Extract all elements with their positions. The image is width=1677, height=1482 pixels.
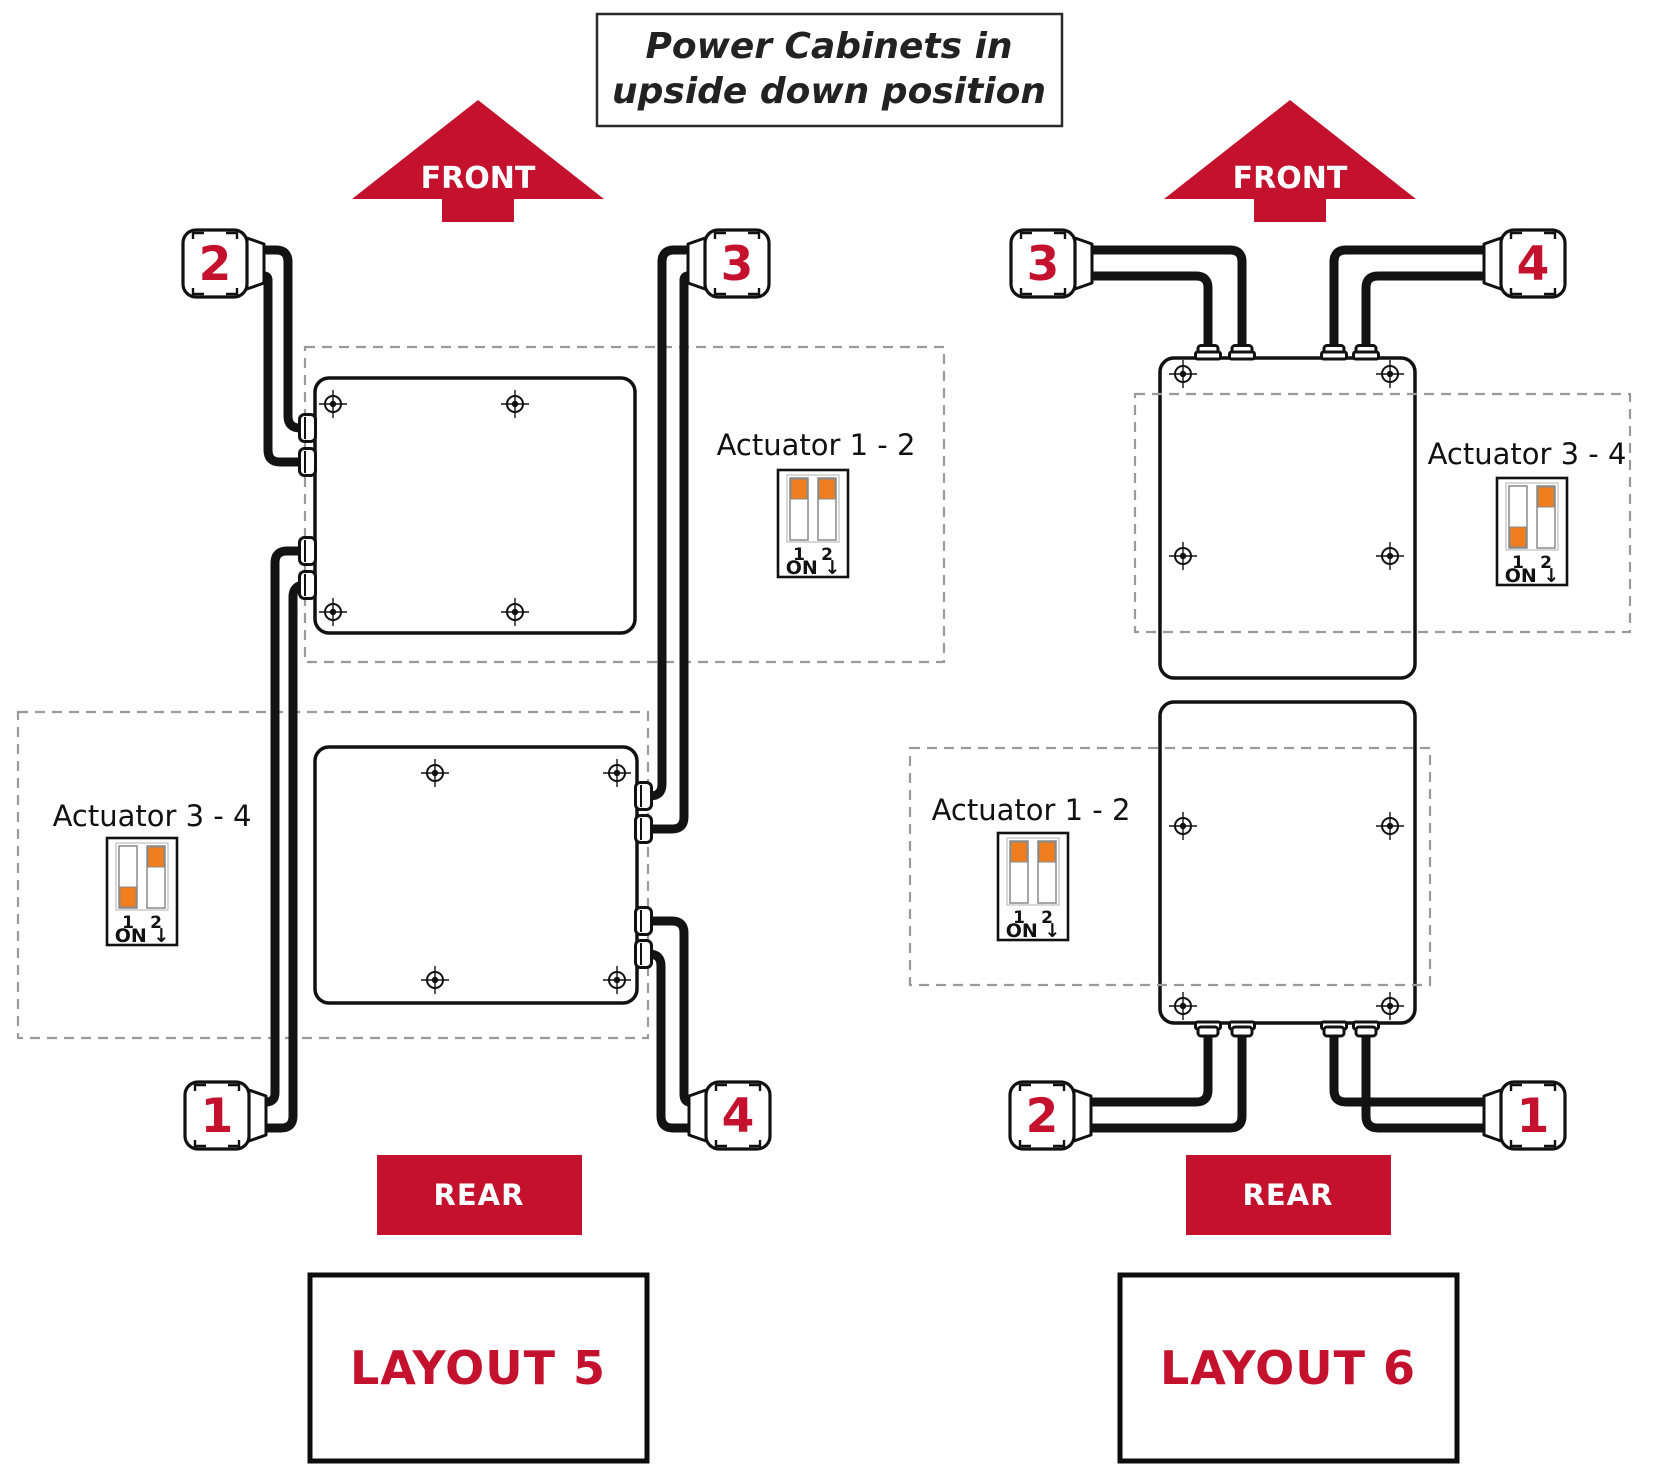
- connector-number: 2: [1026, 1089, 1059, 1144]
- layout5-name: LAYOUT 5: [350, 1341, 606, 1395]
- power-cabinet-diagram: Actuator 1 - 2 Actuator 3 - 4 Actuator 3…: [0, 0, 1677, 1477]
- dip-handle-1: [1011, 842, 1027, 862]
- dip-on-label: ON ↓: [115, 925, 170, 947]
- port: [1354, 1022, 1379, 1036]
- front-label: FRONT: [421, 161, 536, 196]
- diagram-canvas: Actuator 1 - 2 Actuator 3 - 4 Actuator 3…: [0, 0, 1677, 1477]
- rear-bar-layout6: REAR: [1186, 1155, 1391, 1235]
- layout6-actuator12-label: Actuator 1 - 2: [932, 793, 1131, 827]
- connector-2-layout5: 2: [183, 230, 264, 297]
- title-box: Power Cabinets in upside down position: [597, 14, 1062, 126]
- layout6-name-box: LAYOUT 6: [1120, 1275, 1457, 1461]
- dip-handle-1: [120, 887, 136, 907]
- layout6-name: LAYOUT 6: [1160, 1341, 1416, 1395]
- dip-handle-2: [1538, 487, 1554, 507]
- port: [300, 415, 316, 442]
- port: [636, 941, 652, 968]
- dip-handle-2: [148, 847, 164, 867]
- port: [1354, 346, 1379, 360]
- layout5-front-cabinet: [315, 378, 635, 633]
- title-line-1: Power Cabinets in: [645, 26, 1012, 67]
- connector-3-layout5: 3: [688, 230, 769, 297]
- layout6-actuator34-label: Actuator 3 - 4: [1428, 437, 1627, 471]
- port: [1230, 346, 1255, 360]
- connector-1-layout6: 1: [1484, 1082, 1565, 1149]
- port: [300, 572, 316, 599]
- port: [300, 449, 316, 476]
- dip-on-label: ON ↓: [786, 557, 841, 579]
- dip-handle-2: [1039, 842, 1055, 862]
- connector-number: 1: [201, 1089, 234, 1144]
- connector-number: 1: [1517, 1089, 1550, 1144]
- layout5-rear-cabinet: [315, 747, 637, 1003]
- front-arrow-layout5: FRONT: [352, 100, 604, 222]
- dip-on-label: ON ↓: [1006, 920, 1061, 942]
- dip-switch-actuator34-layout5: 1 2 ON ↓: [107, 838, 177, 947]
- connector-number: 2: [199, 237, 232, 292]
- dip-switch-actuator34-layout6: 1 2 ON ↓: [1497, 478, 1567, 587]
- layout5-actuator34-label: Actuator 3 - 4: [53, 799, 252, 833]
- port: [1322, 1022, 1347, 1036]
- dip-switch-actuator12-layout6: 1 2 ON ↓: [998, 833, 1068, 942]
- connector-4-layout6: 4: [1484, 230, 1565, 297]
- dip-handle-2: [819, 479, 835, 499]
- dip-handle-1: [1510, 527, 1526, 547]
- connector-number: 4: [722, 1089, 755, 1144]
- port: [300, 538, 316, 565]
- connector-2-layout6: 2: [1010, 1082, 1091, 1149]
- port: [1196, 1022, 1221, 1036]
- front-arrow-layout6: FRONT: [1164, 100, 1416, 222]
- rear-bar-layout5: REAR: [377, 1155, 582, 1235]
- layout5-name-box: LAYOUT 5: [310, 1275, 647, 1461]
- dip-handle-1: [791, 479, 807, 499]
- connector-3-layout6: 3: [1011, 230, 1092, 297]
- connector-number: 3: [721, 237, 754, 292]
- dip-on-label: ON ↓: [1505, 565, 1560, 587]
- port: [636, 908, 652, 935]
- port: [636, 783, 652, 810]
- layout6-front-cabinet: [1160, 358, 1415, 678]
- connector-number: 3: [1027, 237, 1060, 292]
- port: [636, 816, 652, 843]
- layout6-rear-cabinet: [1160, 702, 1415, 1023]
- layout5-actuator12-label: Actuator 1 - 2: [717, 428, 916, 462]
- rear-label: REAR: [1243, 1178, 1334, 1212]
- port: [1196, 346, 1221, 360]
- connector-4-layout5: 4: [689, 1082, 770, 1149]
- rear-label: REAR: [434, 1178, 525, 1212]
- connector-number: 4: [1517, 237, 1550, 292]
- front-label: FRONT: [1233, 161, 1348, 196]
- port: [1322, 346, 1347, 360]
- connector-1-layout5: 1: [185, 1082, 266, 1149]
- dip-switch-actuator12-layout5: 1 2 ON ↓: [778, 470, 848, 579]
- title-line-2: upside down position: [612, 71, 1046, 112]
- port: [1230, 1022, 1255, 1036]
